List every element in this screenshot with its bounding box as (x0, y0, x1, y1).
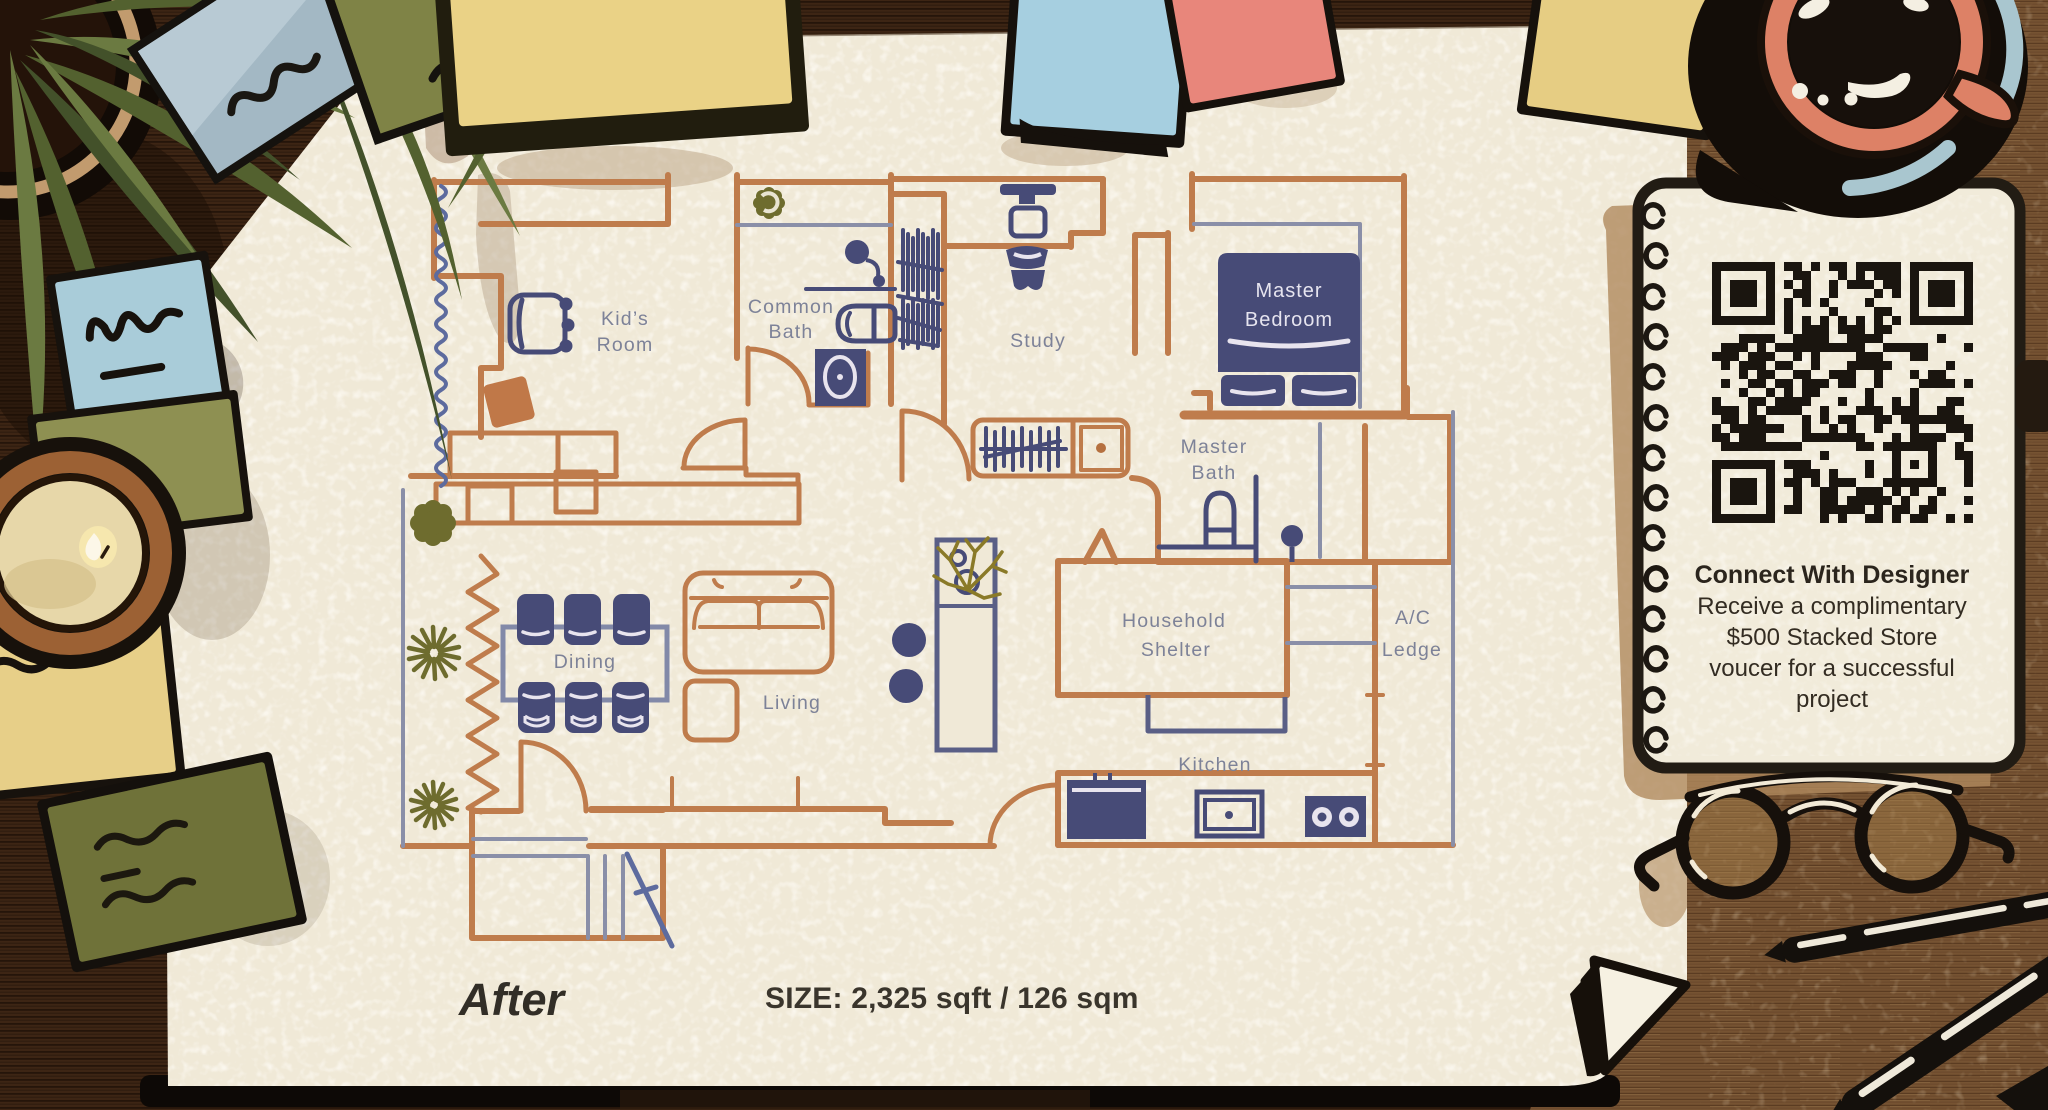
svg-text:Bath: Bath (1192, 462, 1237, 484)
svg-text:Receive a complimentary: Receive a complimentary (1697, 593, 1966, 620)
svg-text:Shelter: Shelter (1141, 639, 1211, 661)
svg-text:Study: Study (1010, 330, 1066, 352)
svg-text:Ledge: Ledge (1382, 639, 1442, 661)
svg-text:Common: Common (748, 296, 834, 318)
svg-text:Bedroom: Bedroom (1245, 309, 1333, 331)
svg-text:Room: Room (597, 334, 654, 356)
svg-text:Kitchen: Kitchen (1178, 754, 1251, 776)
svg-text:Dining: Dining (554, 651, 616, 673)
svg-text:Master: Master (1181, 436, 1248, 458)
svg-text:voucer for a successful: voucer for a successful (1709, 655, 1954, 682)
svg-text:Household: Household (1122, 610, 1226, 632)
svg-text:A/C: A/C (1395, 607, 1431, 629)
svg-text:Connect With Designer: Connect With Designer (1695, 561, 1970, 589)
svg-text:project: project (1796, 686, 1868, 713)
svg-text:Bath: Bath (769, 321, 814, 343)
svg-text:Living: Living (763, 692, 821, 714)
svg-text:$500 Stacked Store: $500 Stacked Store (1727, 624, 1938, 651)
svg-text:SIZE: 2,325 sqft / 126 sqm: SIZE: 2,325 sqft / 126 sqm (765, 982, 1139, 1015)
svg-text:After: After (458, 974, 566, 1025)
svg-text:Master: Master (1255, 280, 1322, 302)
svg-text:Kid’s: Kid’s (601, 308, 649, 330)
